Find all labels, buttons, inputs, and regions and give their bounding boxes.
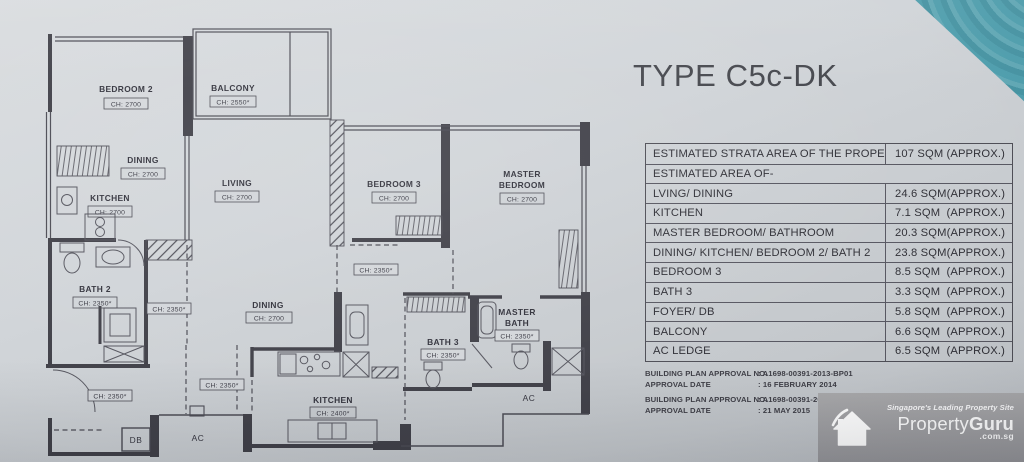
table-row: BALCONY6.6 SQM(APPROX.) — [646, 321, 1012, 341]
table-row-section: ESTIMATED AREA OF- — [646, 164, 1012, 184]
table-row: FOYER/ DB5.8 SQM(APPROX.) — [646, 302, 1012, 322]
propertyguru-watermark: Singapore's Leading Property Site Proper… — [818, 393, 1024, 462]
ch-badge: CH: 2350* — [421, 349, 465, 360]
table-row: BEDROOM 38.5 SQM(APPROX.) — [646, 262, 1012, 282]
ch-badge: CH: 2350* — [354, 264, 398, 275]
zone-label-ac-right: AC — [523, 393, 536, 403]
table-row: KITCHEN7.1 SQM(APPROX.) — [646, 203, 1012, 223]
floorplan-brochure-photo: { "title": "TYPE C5c-DK", "area_table": … — [0, 0, 1024, 462]
table-row: BATH 33.3 SQM(APPROX.) — [646, 282, 1012, 302]
room-label-dining-upper: DINING — [127, 155, 158, 165]
ch-badge: CH: 2700 — [104, 98, 148, 109]
table-row: DINING/ KITCHEN/ BEDROOM 2/ BATH 223.8 S… — [646, 242, 1012, 262]
window-band — [344, 126, 580, 130]
doors — [53, 240, 492, 412]
svg-text:CH: 2700: CH: 2700 — [222, 194, 252, 201]
svg-text:CH: 2350*: CH: 2350* — [93, 393, 126, 400]
svg-text:CH: 2350*: CH: 2350* — [78, 300, 111, 307]
room-label-bath2: BATH 2 — [79, 284, 111, 294]
approval-row: BUILDING PLAN APPROVAL NO.: A1698-00391-… — [645, 369, 965, 380]
ch-badge: CH: 2350* — [495, 330, 539, 341]
master-bath-door — [472, 344, 492, 368]
room-label-dining-lower: DINING — [252, 300, 283, 310]
room-label-bedroom2: BEDROOM 2 — [99, 84, 153, 94]
window-bedroom2 — [55, 37, 183, 41]
balcony-outline — [193, 29, 331, 119]
ch-badge: CH: 2350* — [88, 390, 132, 401]
svg-text:CH: 2350*: CH: 2350* — [426, 352, 459, 359]
table-section-label: ESTIMATED AREA OF- — [646, 168, 1012, 180]
room-label-balcony: BALCONY — [211, 83, 255, 93]
svg-text:CH: 2350*: CH: 2350* — [359, 267, 392, 274]
svg-text:CH: 2700: CH: 2700 — [254, 315, 284, 322]
wardrobe-hatch — [407, 297, 465, 312]
ch-badge: CH: 2700 — [372, 192, 416, 203]
svg-text:CH: 2700: CH: 2700 — [379, 195, 409, 202]
table-cell-label: ESTIMATED STRATA AREA OF THE PROPERTY — [646, 148, 885, 160]
svg-text:CH: 2350*: CH: 2350* — [152, 306, 185, 313]
room-label-master-bath: MASTER — [498, 307, 535, 317]
zone-label-db: DB — [130, 435, 143, 445]
room-label-living: LIVING — [222, 178, 252, 188]
table-cell-value: 107 SQM(APPROX.) — [885, 144, 1012, 164]
ch-badge: CH: 2700 — [88, 206, 132, 217]
hatched-wall — [372, 367, 398, 378]
svg-text:CH: 2700: CH: 2700 — [95, 209, 125, 216]
ch-badge: CH: 2350* — [147, 303, 191, 314]
svg-text:CH: 2400*: CH: 2400* — [316, 410, 349, 417]
watermark-tagline: Singapore's Leading Property Site — [864, 403, 1014, 412]
window-master — [582, 166, 586, 292]
zone-label-ac-bottom: AC — [192, 433, 205, 443]
ch-badge: CH: 2700 — [121, 168, 165, 179]
svg-text:CH: 2350*: CH: 2350* — [205, 382, 238, 389]
hatched-wall — [146, 240, 192, 260]
page-title: TYPE C5c-DK — [633, 58, 838, 94]
wardrobe-hatch — [559, 230, 578, 288]
svg-text:CH: 2700: CH: 2700 — [128, 171, 158, 178]
approval-row: APPROVAL DATE: 16 FEBRUARY 2014 — [645, 380, 965, 391]
room-label-kitchen-lower: KITCHEN — [313, 395, 353, 405]
ch-badge: CH: 2550* — [210, 96, 256, 107]
room-label-master-bedroom: MASTER — [503, 169, 540, 179]
ch-badge: CH: 2400* — [310, 407, 356, 418]
room-label-master-bedroom-2: BEDROOM — [499, 180, 545, 190]
svg-text:CH: 2700: CH: 2700 — [507, 196, 537, 203]
boundary-bottom-right — [401, 414, 589, 446]
ch-badge: CH: 2700 — [500, 193, 544, 204]
hatched-wall — [330, 120, 344, 246]
ch-badge: CH: 2350* — [200, 379, 244, 390]
partition — [185, 136, 189, 240]
svg-text:CH: 2350*: CH: 2350* — [500, 333, 533, 340]
svg-text:CH: 2700: CH: 2700 — [111, 101, 141, 108]
table-row: LVING/ DINING24.6 SQM(APPROX.) — [646, 183, 1012, 203]
svg-text:CH: 2550*: CH: 2550* — [216, 99, 249, 106]
ch-badge: CH: 2700 — [215, 191, 259, 202]
room-label-bath3: BATH 3 — [427, 337, 459, 347]
table-row: MASTER BEDROOM/ BATHROOM20.3 SQM(APPROX.… — [646, 223, 1012, 243]
ch-badge: CH: 2700 — [246, 312, 292, 323]
ch-badge: CH: 2350* — [73, 297, 117, 308]
wardrobe-hatch — [57, 146, 109, 176]
table-row-strata: ESTIMATED STRATA AREA OF THE PROPERTY 10… — [646, 144, 1012, 164]
area-table: ESTIMATED STRATA AREA OF THE PROPERTY 10… — [645, 143, 1013, 362]
window-left — [47, 112, 51, 238]
room-label-kitchen-upper: KITCHEN — [90, 193, 130, 203]
table-row: AC LEDGE6.5 SQM(APPROX.) — [646, 341, 1012, 361]
wardrobe-hatch — [396, 216, 442, 235]
room-label-bedroom3: BEDROOM 3 — [367, 179, 421, 189]
room-label-master-bath-2: BATH — [505, 318, 529, 328]
